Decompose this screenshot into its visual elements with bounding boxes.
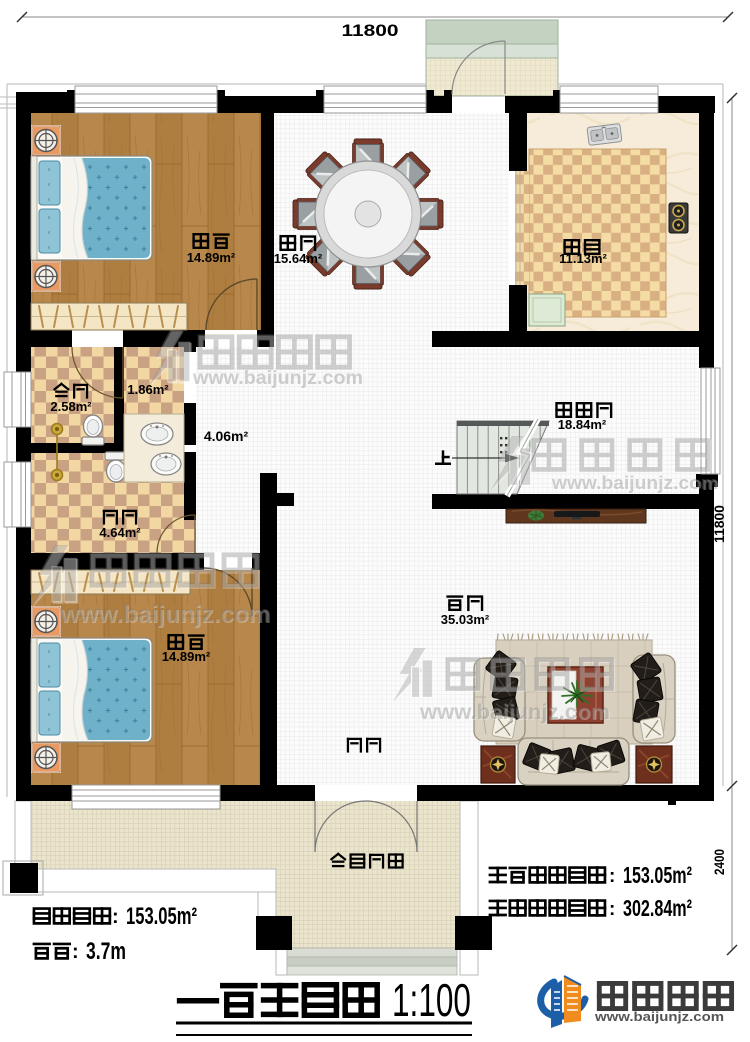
svg-text:153.05m²: 153.05m²: [623, 862, 692, 888]
svg-text:www.baijunjz.com: www.baijunjz.com: [419, 701, 610, 724]
svg-text:4.64m²: 4.64m²: [99, 525, 141, 540]
svg-text::: :: [609, 866, 615, 887]
svg-text:1.86m²: 1.86m²: [127, 382, 169, 397]
svg-text:2.58m²: 2.58m²: [50, 399, 92, 414]
svg-text:14.89m²: 14.89m²: [187, 250, 236, 265]
svg-text:35.03m²: 35.03m²: [441, 612, 490, 627]
svg-text:3.7m: 3.7m: [86, 938, 126, 965]
svg-text:11800: 11800: [342, 21, 399, 40]
svg-text:www.baijunjz.com: www.baijunjz.com: [594, 1009, 724, 1024]
svg-text:18.84m²: 18.84m²: [558, 417, 607, 432]
svg-text:2400: 2400: [711, 849, 727, 875]
svg-text:4.06m²: 4.06m²: [204, 428, 249, 444]
svg-text:153.05m²: 153.05m²: [126, 903, 197, 930]
svg-text:14.89m²: 14.89m²: [162, 649, 211, 664]
svg-text:www.baijunjz.com: www.baijunjz.com: [551, 473, 718, 493]
svg-text:11.13m²: 11.13m²: [559, 251, 607, 266]
svg-text::: :: [72, 941, 79, 963]
svg-text::: :: [609, 899, 615, 920]
svg-text:www.baijunjz.com: www.baijunjz.com: [192, 368, 363, 389]
svg-text:302.84m²: 302.84m²: [623, 895, 692, 921]
svg-text:15.64m²: 15.64m²: [274, 251, 323, 266]
svg-text:11800: 11800: [711, 505, 727, 543]
svg-text:www.baijunjz.com: www.baijunjz.com: [59, 601, 270, 628]
svg-text:1:100: 1:100: [392, 974, 471, 1026]
svg-text::: :: [112, 906, 119, 928]
